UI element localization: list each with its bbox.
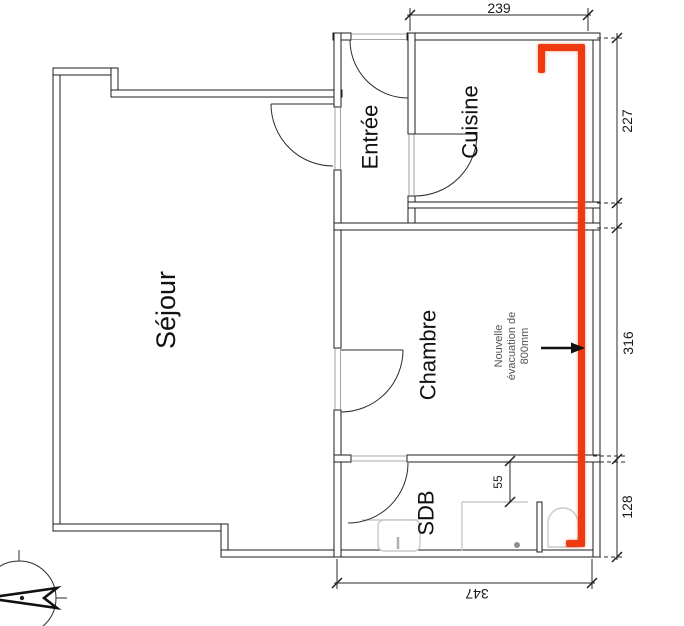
evacuation-annotation: Nouvelle évacuation de 800mm <box>493 312 531 381</box>
wall-sdb-top-b <box>407 455 600 462</box>
wall-left-col-c <box>334 410 341 557</box>
front-door-arc <box>350 40 408 98</box>
wall-sejour-top-bump <box>53 68 118 75</box>
dim-cuisine-height: 227 <box>619 109 635 133</box>
wall-cuisine-bottom <box>408 202 600 208</box>
drain-icon <box>514 542 520 548</box>
dim-chambre-height: 316 <box>620 331 636 355</box>
floor-plan-drawing: 239 227 316 128 347 55 Nouvelle évacuati… <box>0 0 684 626</box>
dimensions: 239 227 316 128 347 55 <box>332 0 636 602</box>
walls <box>53 33 600 557</box>
room-label-cuisine: Cuisine <box>458 85 483 158</box>
dim-block-width: 347 <box>465 586 489 602</box>
bathroom-fixtures <box>362 502 578 551</box>
wall-top-cuisine <box>407 33 600 40</box>
annotation-line-3: 800mm <box>519 328 531 365</box>
duct-bottom-hook <box>566 540 585 547</box>
wall-sejour-left <box>53 68 60 531</box>
wall-sejour-top <box>111 90 342 97</box>
room-label-chambre: Chambre <box>416 310 441 400</box>
sdb-door-arc <box>348 463 408 523</box>
wall-entree-cuisine-a <box>408 33 415 134</box>
wall-toilet-partition <box>537 502 542 552</box>
room-label-sejour: Séjour <box>151 271 181 349</box>
room-labels: Séjour Entrée Cuisine Chambre SDB <box>151 85 483 535</box>
wall-right-exterior <box>593 33 600 557</box>
wall-sejour-bottom <box>53 524 228 531</box>
duct-top-stub <box>538 44 545 73</box>
wall-left-col-b <box>334 170 341 348</box>
wall-sdb-top-a <box>334 455 351 462</box>
chambre-door-arc <box>341 350 403 412</box>
dim-cuisine-width: 239 <box>487 0 511 16</box>
dim-shower-offset: 55 <box>491 475 505 489</box>
room-label-entree: Entrée <box>358 105 383 170</box>
wall-chambre-top <box>334 223 600 230</box>
duct-top-run <box>538 44 585 51</box>
annotation-line-1: Nouvelle <box>493 325 505 368</box>
red-duct <box>538 44 585 547</box>
annotation-line-2: évacuation de <box>506 312 518 381</box>
dim-sdb-height: 128 <box>619 495 635 519</box>
north-arrow-icon <box>0 550 67 626</box>
room-label-sdb: SDB <box>414 490 439 535</box>
wall-left-col-a <box>334 33 341 107</box>
floor-plan: 239 227 316 128 347 55 Nouvelle évacuati… <box>0 0 684 626</box>
sejour-door-arc <box>271 104 333 166</box>
duct-vertical <box>578 44 585 547</box>
